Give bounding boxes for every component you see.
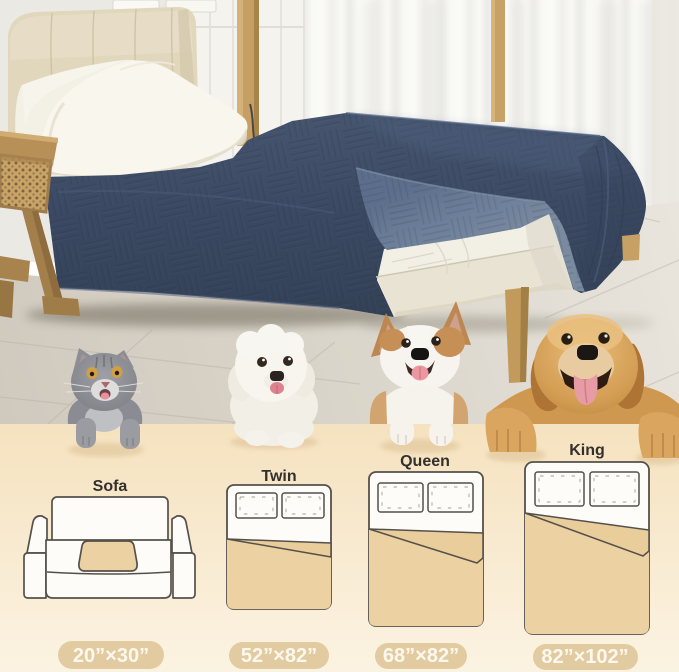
svg-text:Queen: Queen: [400, 453, 450, 470]
svg-text:King: King: [569, 442, 605, 459]
svg-text:Twin: Twin: [261, 468, 296, 485]
svg-text:Sofa: Sofa: [93, 478, 128, 495]
svg-text:82”×102”: 82”×102”: [541, 646, 628, 668]
svg-text:20”×30”: 20”×30”: [73, 645, 149, 667]
svg-text:52”×82”: 52”×82”: [241, 645, 317, 667]
svg-text:68”×82”: 68”×82”: [383, 645, 459, 667]
